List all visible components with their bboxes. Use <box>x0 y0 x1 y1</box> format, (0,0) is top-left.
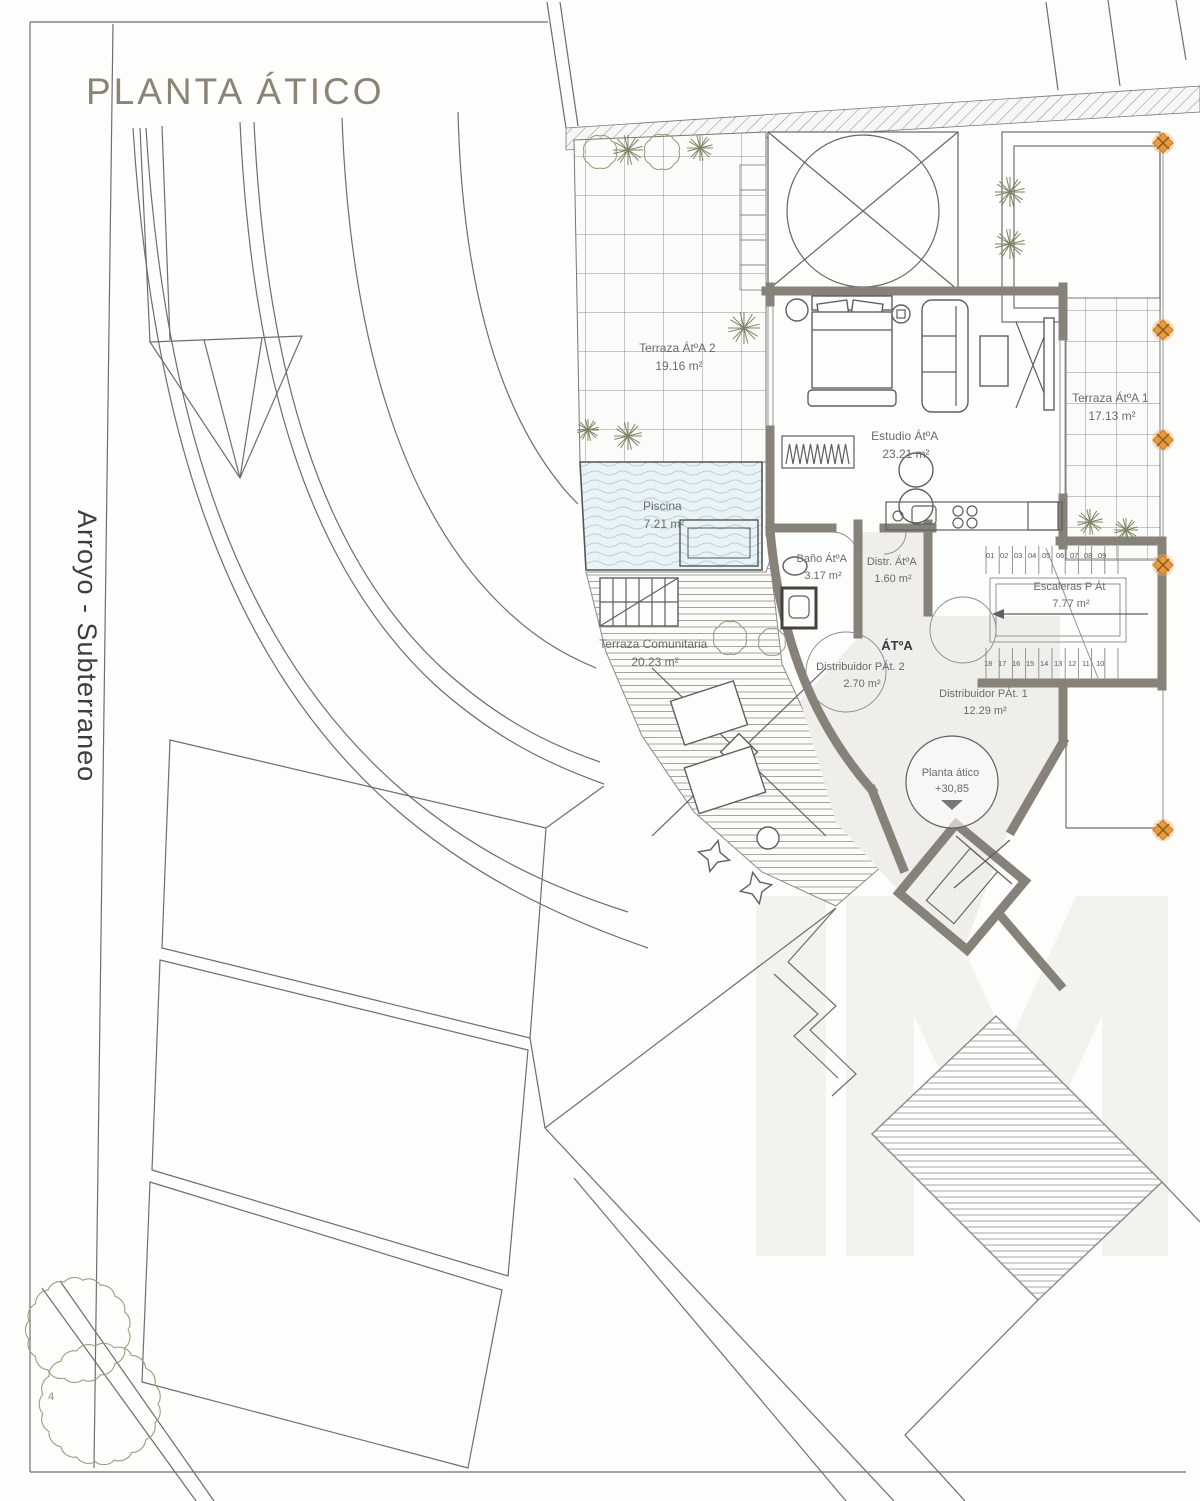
spiky-plant-icon <box>614 422 642 450</box>
page-title: PLANTA ÁTICO <box>86 71 385 112</box>
spiky-plant-icon <box>728 312 760 344</box>
roof-opening <box>740 132 958 290</box>
spiky-plant-icon <box>577 419 599 441</box>
grip-marker <box>1152 429 1174 451</box>
unit-label: ÁTºA <box>881 638 913 653</box>
tree-label: 4 <box>48 1391 54 1403</box>
room-label-estudio: Estudio ÁtºA 23.21 m² <box>871 428 941 461</box>
grip-marker <box>1152 132 1174 154</box>
spiky-plant-icon <box>1114 518 1138 542</box>
terraza-atico-1 <box>1066 298 1160 560</box>
spiky-plant-icon <box>613 135 643 165</box>
spiky-plant-icon <box>687 135 713 161</box>
bathroom-fixtures <box>782 557 816 628</box>
grip-marker <box>1152 819 1174 841</box>
spiky-plant-icon <box>995 177 1025 207</box>
grip-marker <box>1152 319 1174 341</box>
piscina-pool <box>580 462 762 570</box>
spiky-plant-icon <box>995 229 1025 259</box>
terraza-atico-2 <box>574 132 766 462</box>
grip-marker <box>1152 554 1174 576</box>
shrub-plant-icon <box>39 1343 160 1464</box>
estudio-furniture <box>782 296 1062 530</box>
spiky-plant-icon <box>1077 509 1103 535</box>
shrub-plant-icon <box>25 1278 130 1383</box>
floor-plan-svg: PLANTA ÁTICO Arroyo - Subterraneo Terraz… <box>0 0 1200 1501</box>
street-label: Arroyo - Subterraneo <box>72 510 102 782</box>
stair-numbers-up: 01 02 03 04 05 06 07 08 09 <box>986 551 1106 560</box>
floor-plan-page: PLANTA ÁTICO Arroyo - Subterraneo Terraz… <box>0 0 1200 1501</box>
stair-numbers-down: 18 17 16 15 14 13 12 11 10 <box>984 659 1104 668</box>
level-marker <box>906 736 998 828</box>
